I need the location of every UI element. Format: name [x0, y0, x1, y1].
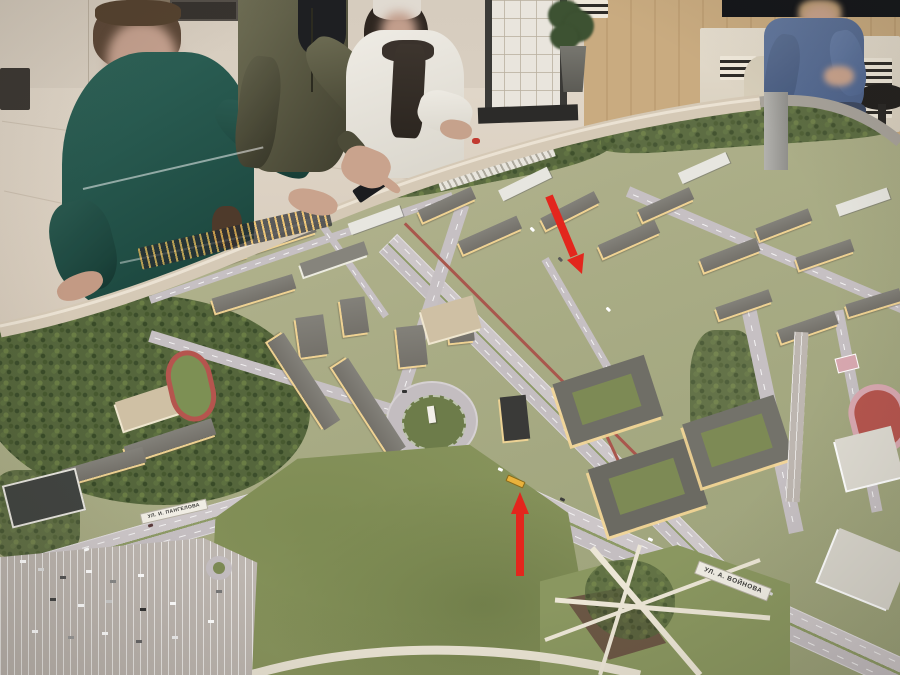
- arrow-to-intersection: [549, 196, 584, 274]
- photo-canvas: УЛ. И. ПАНГЕЛОВА УЛ. А. ВОЙНОВА: [0, 0, 900, 675]
- arrow-to-bus: [511, 492, 529, 576]
- annotation-arrows: [0, 0, 900, 675]
